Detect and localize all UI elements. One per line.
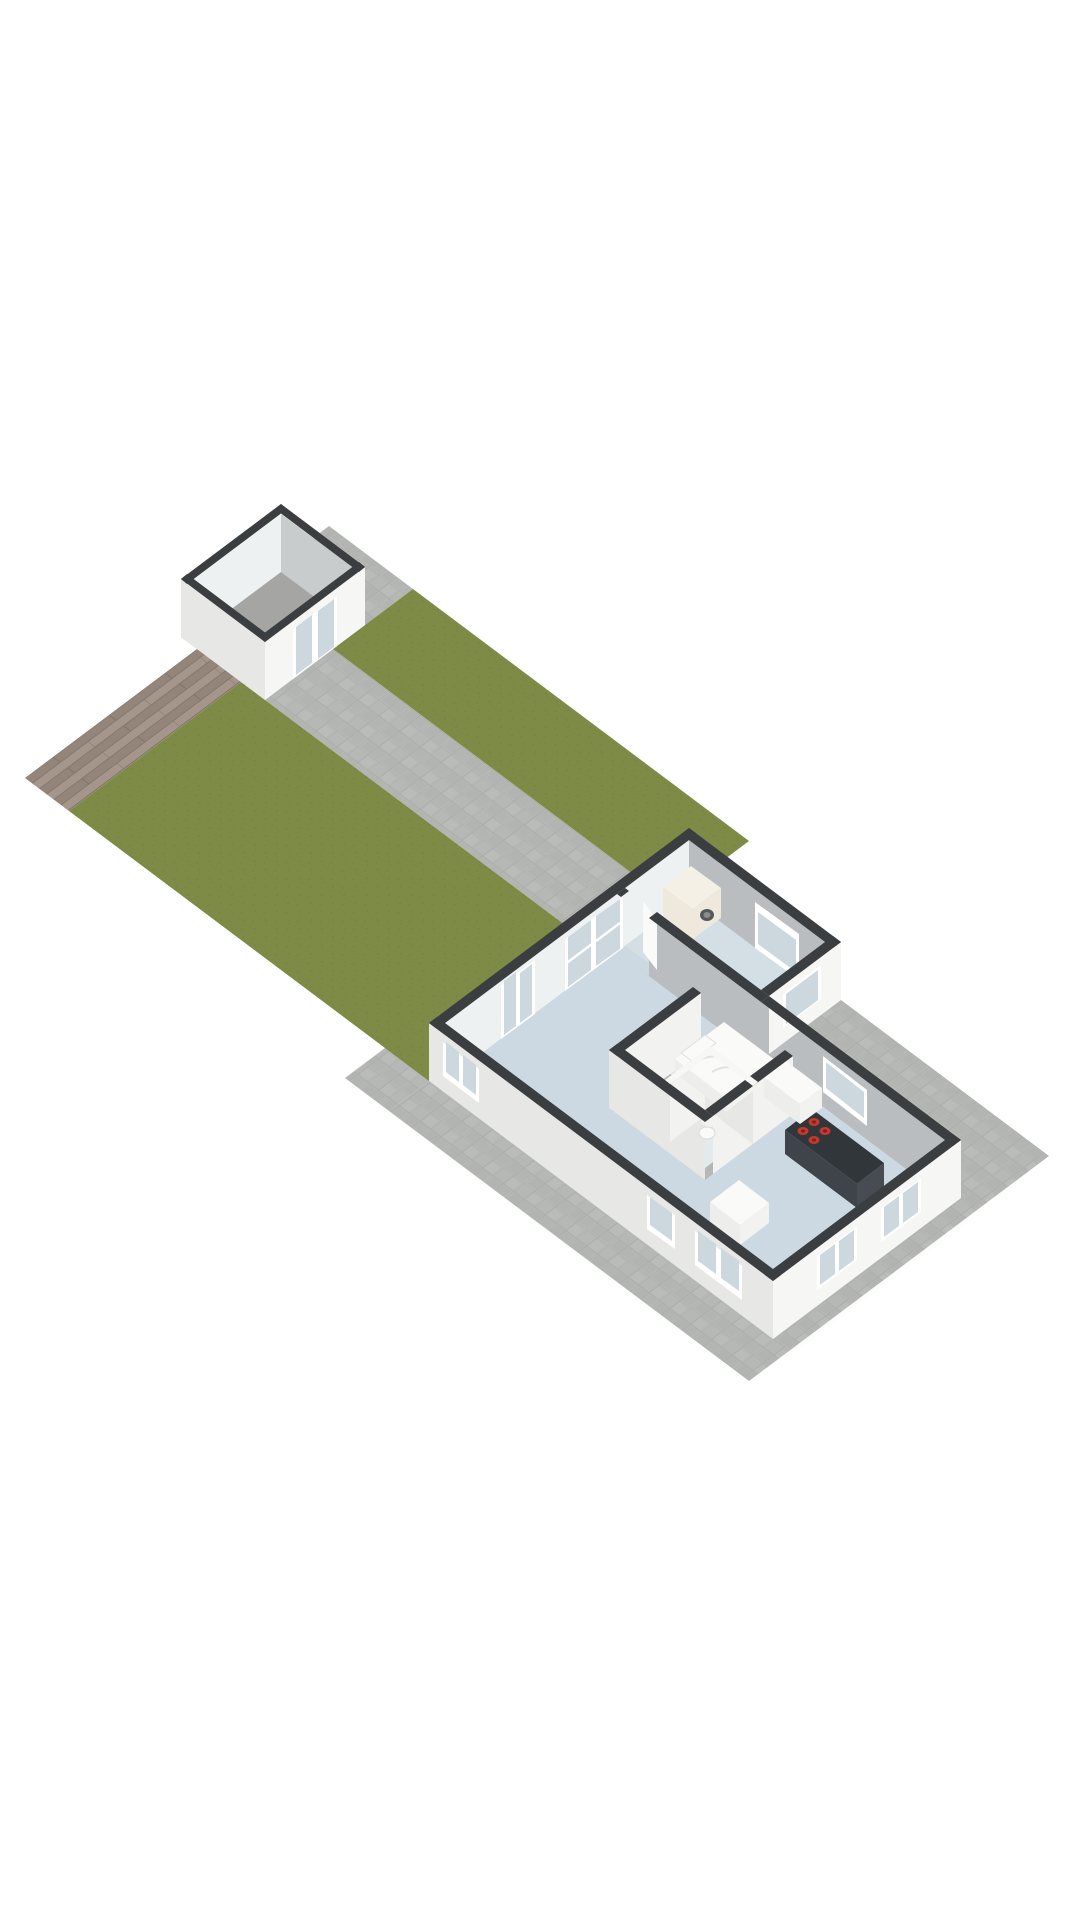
burner-center [823, 1130, 827, 1133]
burner-center [812, 1139, 816, 1142]
toilet-bowl [699, 1127, 715, 1139]
door-glass [520, 964, 532, 1023]
floorplan-render [0, 0, 1080, 1920]
burner-center [812, 1121, 816, 1124]
burner-center [801, 1130, 805, 1133]
washer-door-glass [704, 912, 711, 918]
door-glass [504, 972, 516, 1035]
floorplan-canvas [0, 0, 1080, 1920]
